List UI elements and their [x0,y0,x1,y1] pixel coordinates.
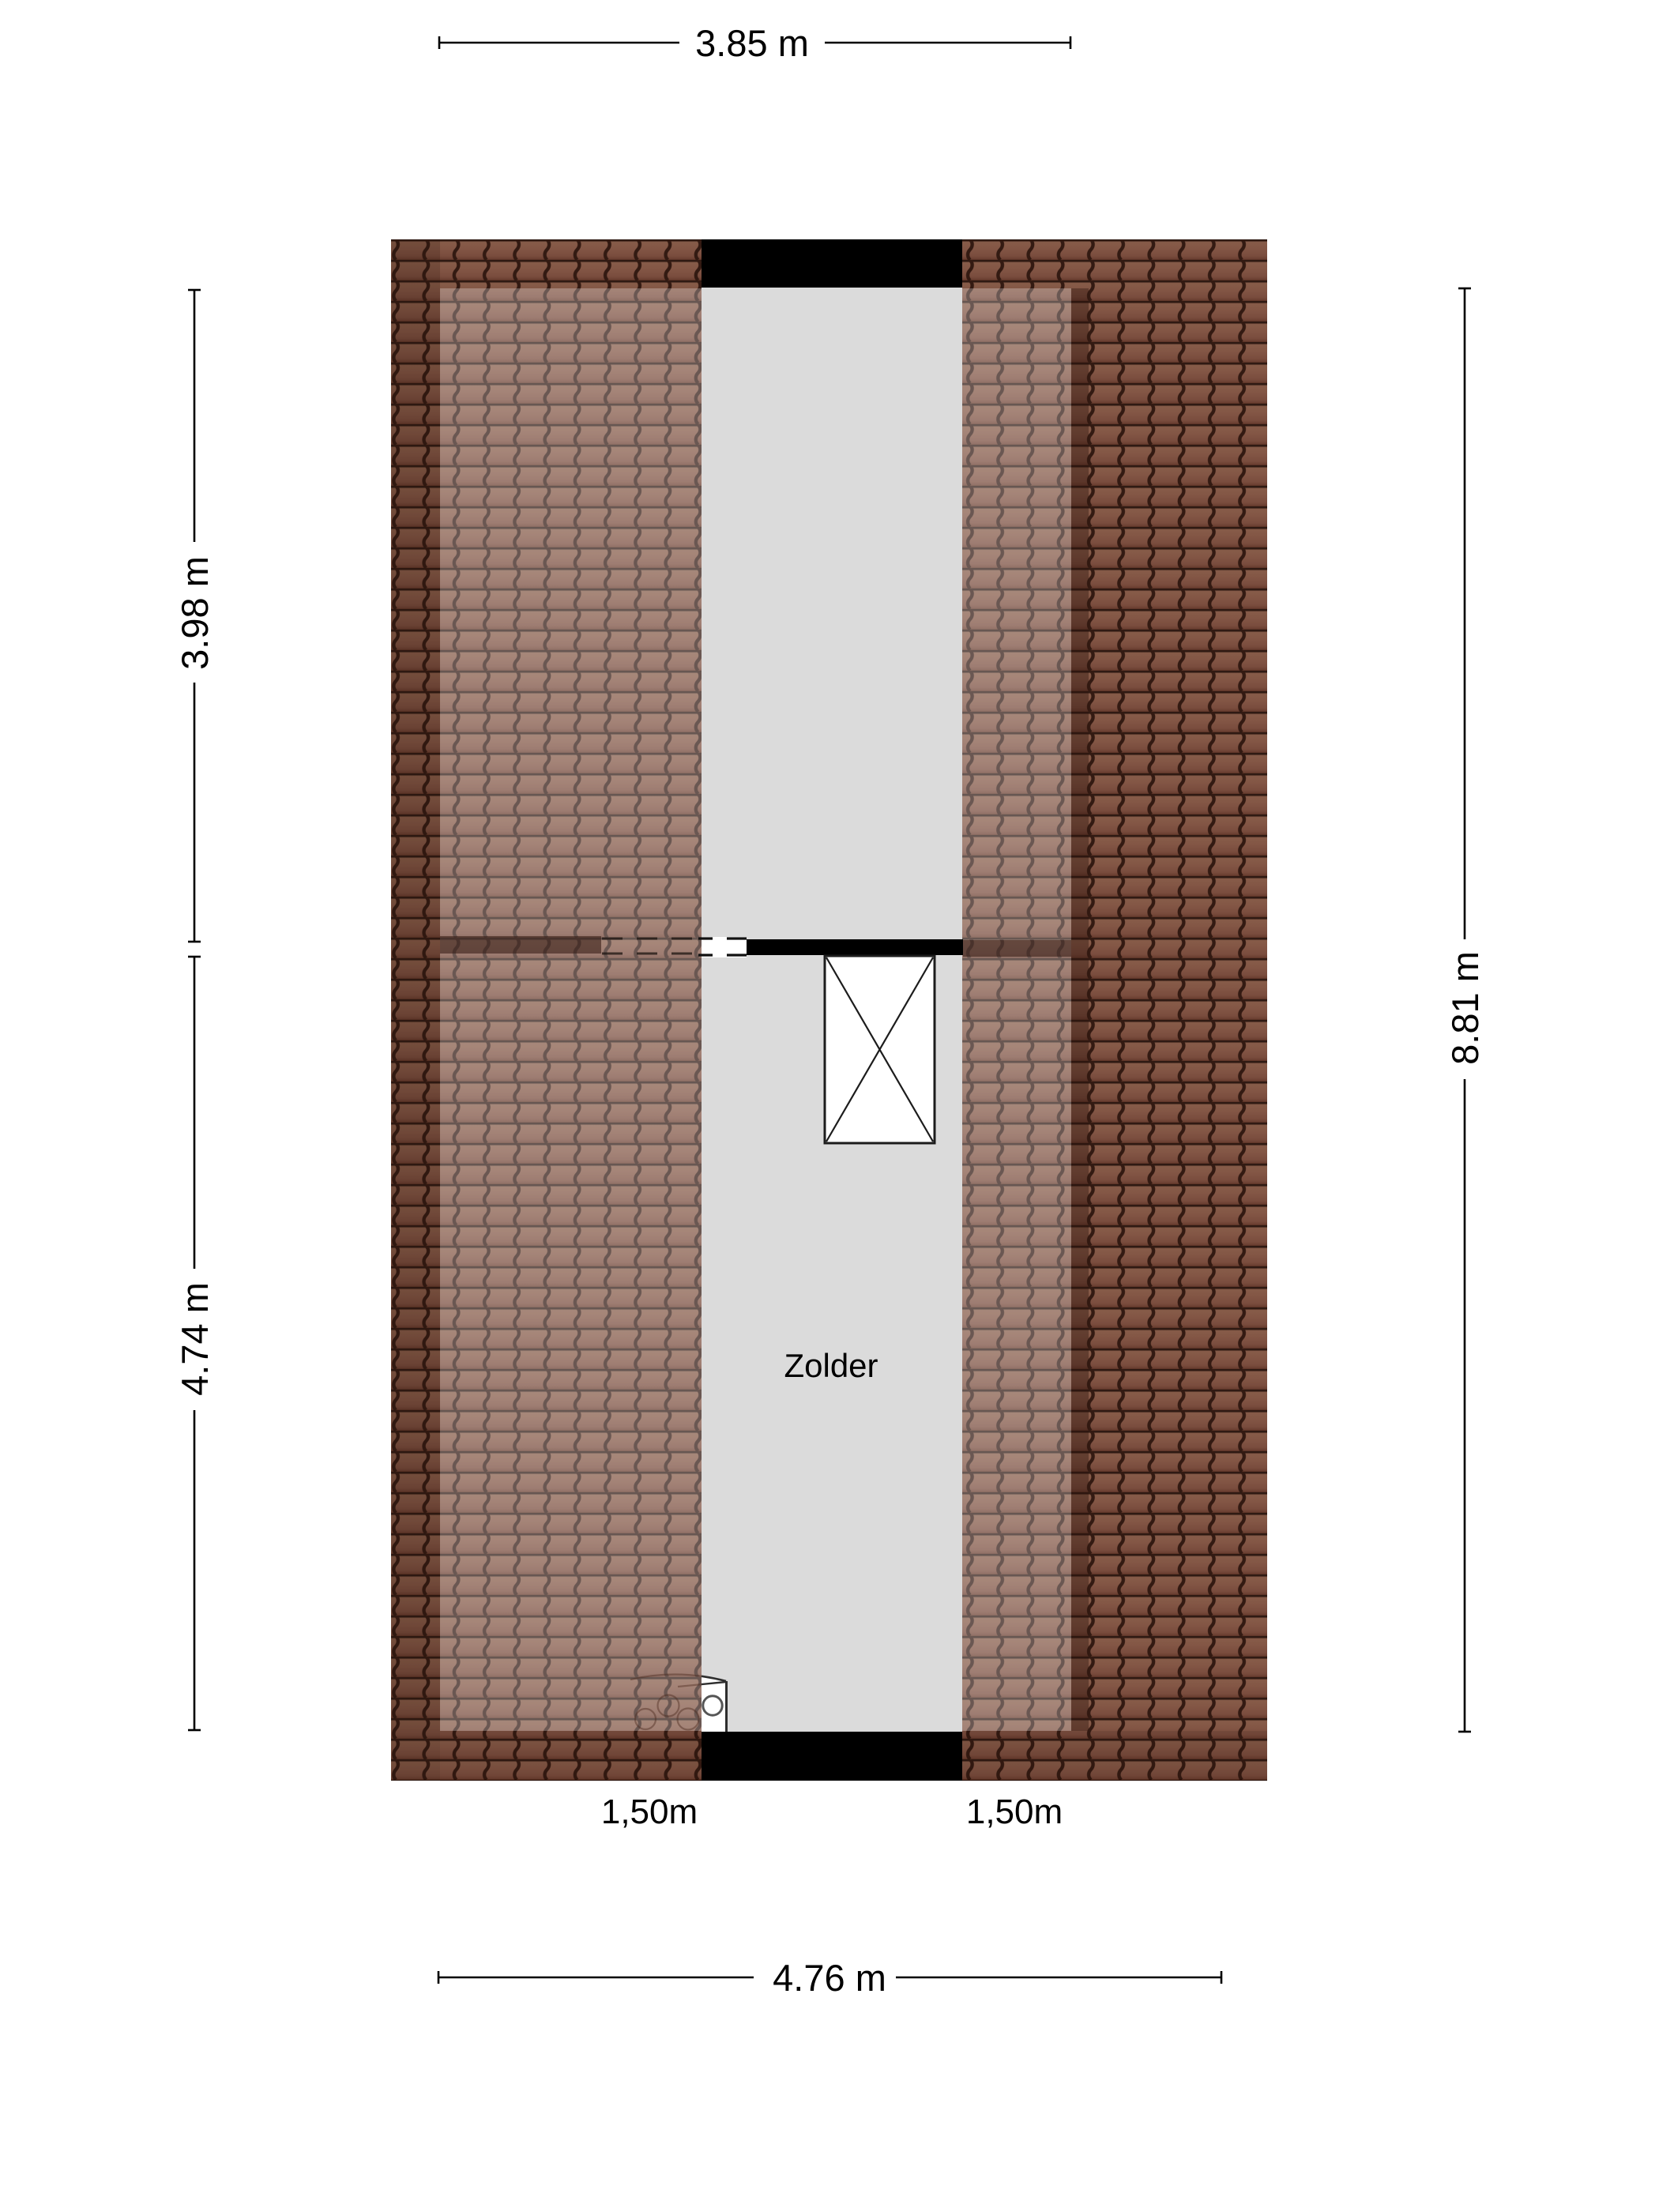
svg-text:1,50m: 1,50m [601,1793,698,1831]
svg-text:8.81 m: 8.81 m [1444,951,1486,1065]
svg-text:Zolder: Zolder [784,1347,878,1384]
svg-text:4.74 m: 4.74 m [174,1282,216,1396]
svg-text:3.98 m: 3.98 m [174,556,216,670]
svg-text:3.85 m: 3.85 m [695,22,809,64]
svg-text:4.76 m: 4.76 m [773,1957,886,1999]
svg-text:1,50m: 1,50m [966,1793,1063,1831]
